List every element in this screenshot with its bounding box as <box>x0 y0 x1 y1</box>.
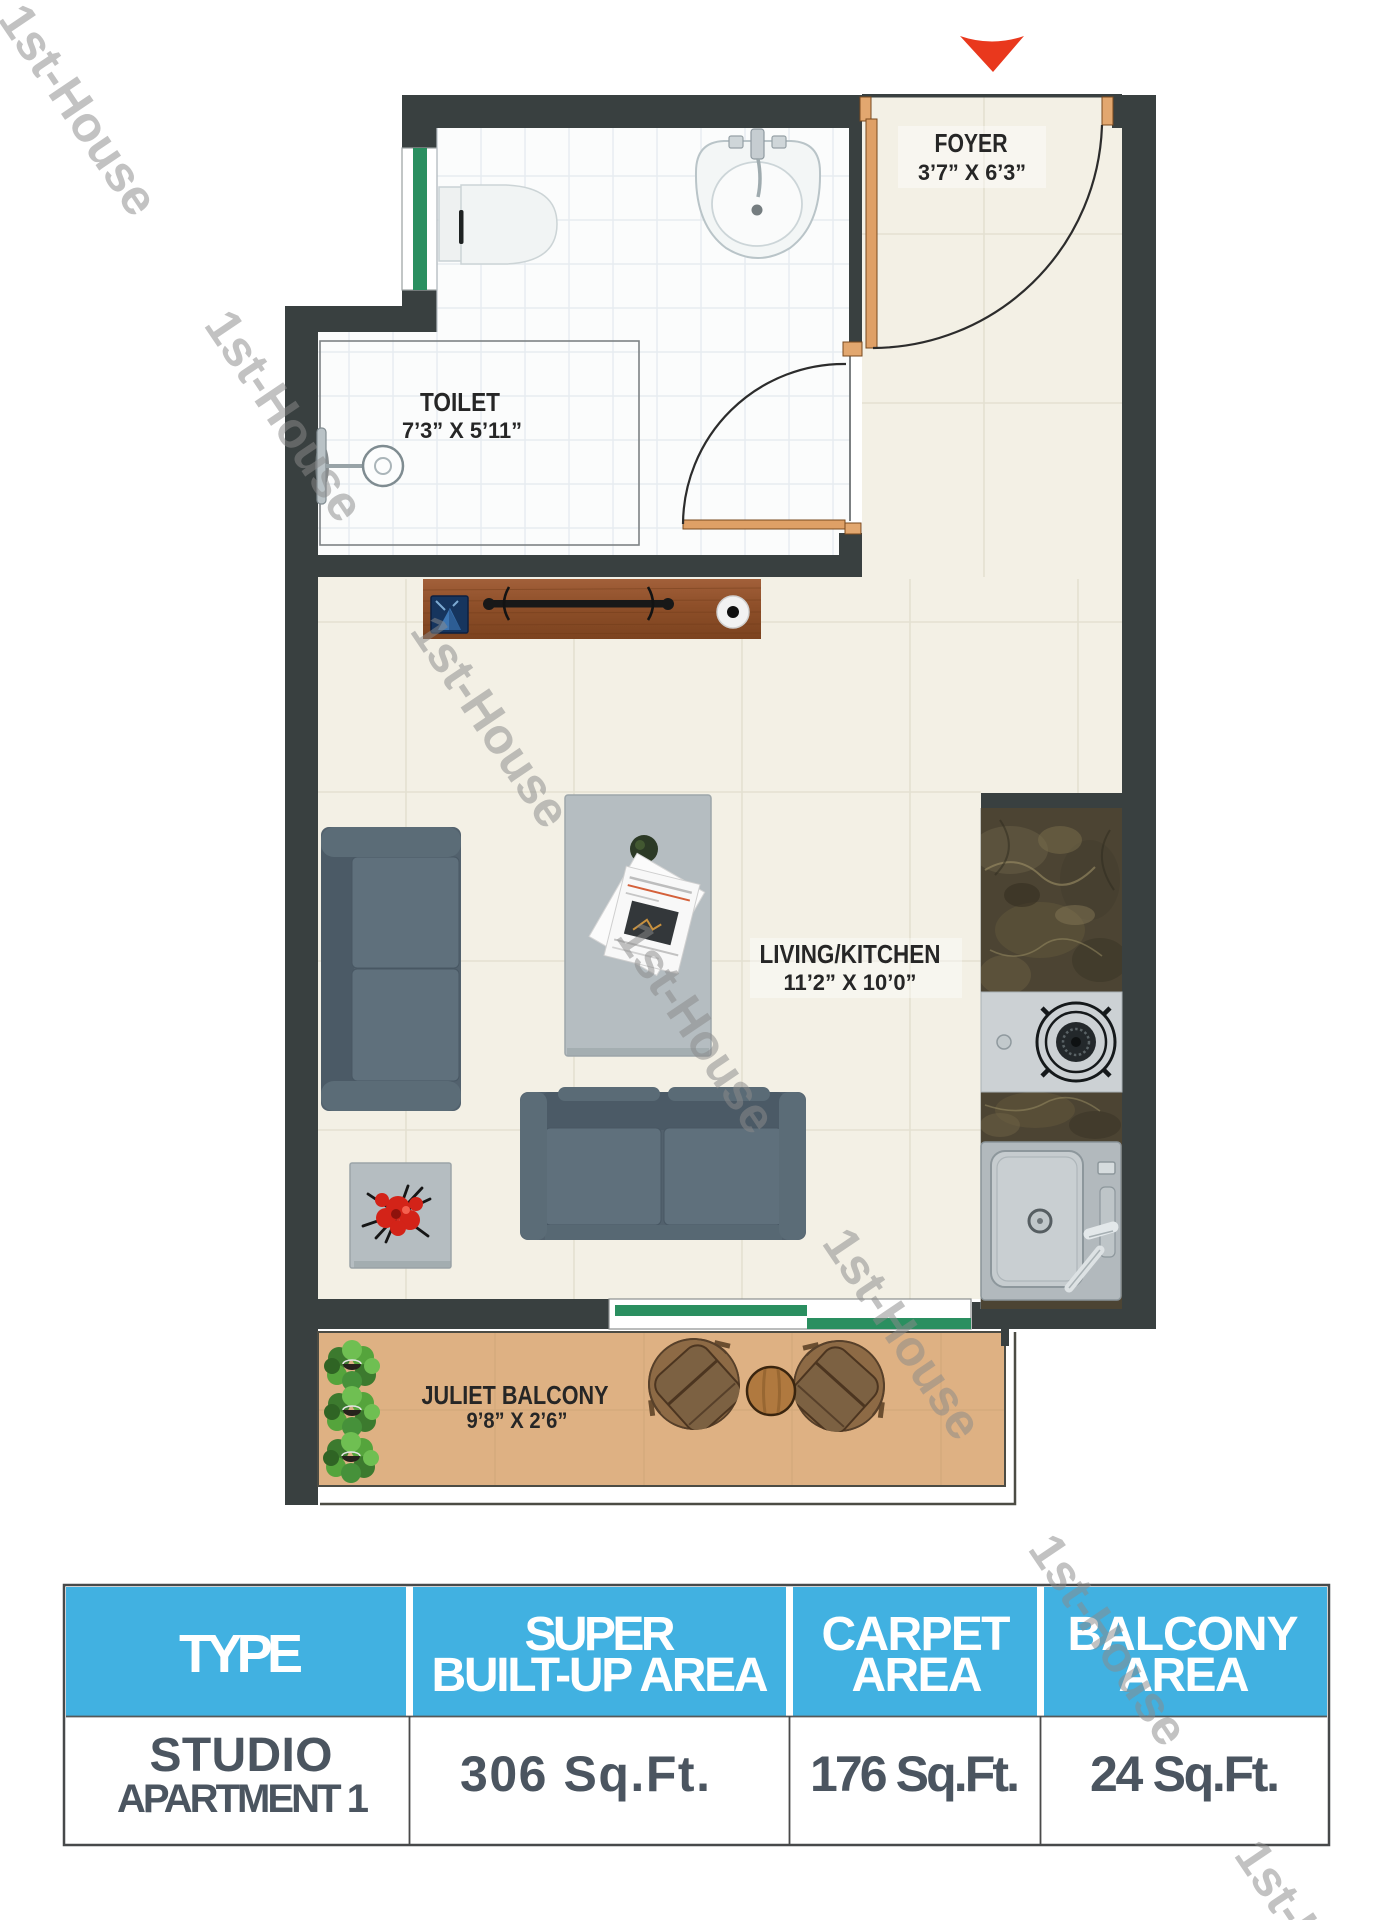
svg-text:176 Sq.Ft.: 176 Sq.Ft. <box>810 1746 1020 1802</box>
svg-text:24 Sq.Ft.: 24 Sq.Ft. <box>1090 1746 1280 1802</box>
svg-text:LIVING/KITCHEN: LIVING/KITCHEN <box>760 939 941 969</box>
svg-text:3’7” X 6’3”: 3’7” X 6’3” <box>918 160 1026 185</box>
svg-text:306 Sq.Ft.: 306 Sq.Ft. <box>460 1746 710 1802</box>
svg-text:JULIET BALCONY: JULIET BALCONY <box>422 1380 609 1410</box>
svg-text:TOILET: TOILET <box>420 387 500 417</box>
svg-text:AREA: AREA <box>852 1649 983 1702</box>
svg-text:7’3” X 5’11”: 7’3” X 5’11” <box>402 418 522 443</box>
svg-text:BUILT-UP AREA: BUILT-UP AREA <box>432 1649 769 1702</box>
svg-text:11’2” X 10’0”: 11’2” X 10’0” <box>784 970 917 995</box>
svg-text:STUDIO: STUDIO <box>150 1729 333 1782</box>
svg-text:APARTMENT 1: APARTMENT 1 <box>117 1777 369 1821</box>
svg-text:TYPE: TYPE <box>179 1624 303 1684</box>
svg-text:FOYER: FOYER <box>935 128 1008 158</box>
svg-text:1st-House: 1st-House <box>0 0 169 226</box>
svg-text:9’8” X 2’6”: 9’8” X 2’6” <box>467 1408 568 1433</box>
